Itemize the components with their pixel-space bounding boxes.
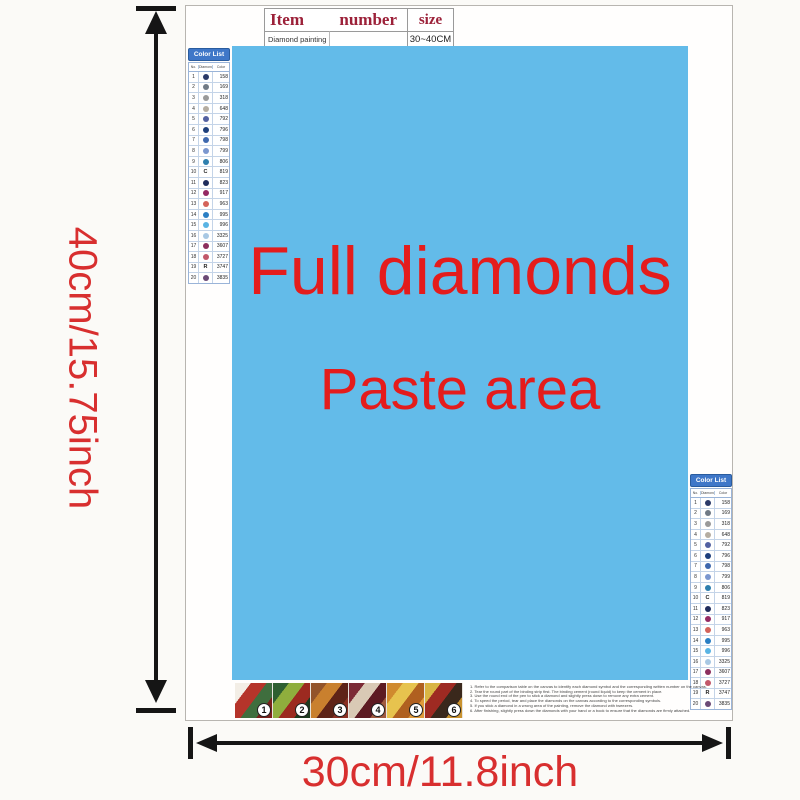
diamond-color-dot — [705, 648, 711, 654]
dmc-color-code: 796 — [715, 553, 731, 559]
diamond-symbol — [199, 125, 213, 135]
dmc-color-code: 799 — [715, 574, 731, 580]
diamond-symbol — [199, 178, 213, 188]
color-list-row: 163325 — [189, 231, 229, 242]
arrow-right-icon — [702, 734, 723, 752]
dmc-color-code: 792 — [715, 542, 731, 548]
color-list-row: 9806 — [189, 157, 229, 168]
dmc-color-code: 158 — [213, 74, 229, 80]
color-list-row: 19R3747 — [189, 263, 229, 274]
canvas-sheet: Item number size Diamond painting 30~40C… — [185, 5, 733, 721]
diamond-symbol — [701, 540, 715, 550]
color-list-row: 7798 — [691, 562, 731, 573]
color-list-row: 3318 — [691, 519, 731, 530]
dmc-color-code: 819 — [213, 169, 229, 175]
diamond-symbol — [701, 509, 715, 519]
vertical-arrow-bottom-cap — [136, 708, 176, 713]
color-list-row: 6796 — [189, 125, 229, 136]
diamond-color-dot — [203, 148, 209, 154]
dmc-color-code: 996 — [715, 648, 731, 654]
color-list-title: Color List — [690, 474, 732, 487]
dmc-color-code: 996 — [213, 222, 229, 228]
preview-thumbnail: 6 — [425, 683, 463, 718]
thumbnail-number-badge: 3 — [333, 703, 347, 717]
dmc-color-code: 3607 — [213, 243, 229, 249]
dmc-color-code: 318 — [213, 95, 229, 101]
color-list-column-header: Diamond — [199, 65, 213, 69]
color-list-row: 1158 — [189, 72, 229, 83]
diamond-color-dot — [705, 606, 711, 612]
preview-thumbnail: 4 — [349, 683, 387, 718]
diamond-color-dot — [705, 669, 711, 675]
color-list-row: 12917 — [691, 615, 731, 626]
color-list-row: 13963 — [189, 199, 229, 210]
color-list-row: 8799 — [691, 572, 731, 583]
diamond-symbol: C — [701, 593, 715, 603]
color-list-row: 5792 — [189, 114, 229, 125]
product-diagram: 40cm/15.75inch Item number size Diamond … — [0, 0, 800, 800]
dmc-color-code: 806 — [715, 585, 731, 591]
dmc-color-code: 158 — [715, 500, 731, 506]
color-list-row: 14995 — [691, 636, 731, 647]
color-row-number: 13 — [189, 199, 199, 209]
diamond-symbol — [701, 636, 715, 646]
thumbnail-number-badge: 6 — [447, 703, 461, 717]
diamond-color-dot — [203, 116, 209, 122]
diamond-symbol — [701, 615, 715, 625]
color-row-number: 12 — [189, 189, 199, 199]
color-row-number: 3 — [691, 519, 701, 529]
preview-thumbnail: 5 — [387, 683, 425, 718]
dmc-color-code: 819 — [715, 595, 731, 601]
diamond-symbol — [701, 551, 715, 561]
diamond-symbol — [701, 625, 715, 635]
diamond-symbol — [701, 498, 715, 508]
diamond-symbol: R — [199, 263, 213, 273]
diamond-color-dot — [705, 659, 711, 665]
dmc-color-code: 799 — [213, 148, 229, 154]
thumbnail-number-badge: 5 — [409, 703, 423, 717]
color-list-row: 163325 — [691, 657, 731, 668]
color-row-number: 2 — [189, 83, 199, 93]
size-header-label: size — [407, 9, 453, 31]
color-list-column-header: Color — [715, 491, 731, 495]
diamond-color-dot — [203, 159, 209, 165]
horizontal-arrow-right-cap — [726, 727, 731, 759]
color-list-row: 14995 — [189, 210, 229, 221]
diamond-color-dot — [705, 563, 711, 569]
dmc-color-code: 995 — [213, 212, 229, 218]
color-list-row: 9806 — [691, 583, 731, 594]
dmc-color-code: 169 — [213, 84, 229, 90]
color-row-number: 8 — [691, 572, 701, 582]
paste-area-subtitle: Paste area — [232, 356, 688, 423]
color-row-number: 8 — [189, 146, 199, 156]
diamond-symbol — [199, 189, 213, 199]
diamond-symbol — [199, 157, 213, 167]
color-list-row: 173607 — [189, 242, 229, 253]
paste-area: Full diamonds Paste area — [232, 46, 688, 680]
dmc-color-code: 169 — [715, 510, 731, 516]
diamond-symbol — [199, 146, 213, 156]
width-dimension-label: 30cm/11.8inch — [240, 748, 640, 797]
diamond-symbol — [199, 114, 213, 124]
diamond-color-dot — [203, 137, 209, 143]
color-list-row: 13963 — [691, 625, 731, 636]
color-list-row: 15996 — [691, 646, 731, 657]
dmc-color-code: 318 — [715, 521, 731, 527]
diamond-symbol — [199, 242, 213, 252]
diamond-symbol — [701, 668, 715, 678]
diamond-symbol — [701, 562, 715, 572]
diamond-symbol — [199, 136, 213, 146]
color-row-number: 5 — [691, 540, 701, 550]
color-row-number: 15 — [189, 220, 199, 230]
diamond-color-dot — [203, 106, 209, 112]
color-row-number: 1 — [691, 498, 701, 508]
color-list-row: 8799 — [189, 146, 229, 157]
color-row-number: 10 — [189, 167, 199, 177]
item-size-table: Item number size Diamond painting 30~40C… — [264, 8, 454, 48]
diamond-symbol — [199, 210, 213, 220]
color-list-row: 1158 — [691, 498, 731, 509]
arrow-down-icon — [145, 680, 167, 703]
diamond-color-dot — [203, 180, 209, 186]
diamond-color-dot — [705, 532, 711, 538]
diamond-color-dot — [203, 222, 209, 228]
number-header-label: number — [339, 10, 397, 30]
dmc-color-code: 3325 — [213, 233, 229, 239]
color-row-number: 11 — [691, 604, 701, 614]
color-row-number: 1 — [189, 72, 199, 82]
color-list-row: 11823 — [691, 604, 731, 615]
item-number-cell — [329, 31, 407, 47]
color-row-number: 7 — [189, 136, 199, 146]
diamond-symbol — [199, 231, 213, 241]
color-row-number: 11 — [189, 178, 199, 188]
diamond-symbol — [701, 572, 715, 582]
diamond-color-dot — [203, 74, 209, 80]
dmc-color-code: 3835 — [213, 275, 229, 281]
diamond-color-dot — [705, 500, 711, 506]
diamond-color-dot — [705, 638, 711, 644]
color-row-number: 18 — [189, 252, 199, 262]
thumbnail-number-badge: 1 — [257, 703, 271, 717]
color-list-row: 5792 — [691, 540, 731, 551]
instruction-line: 6. After finishing, slightly press down … — [470, 709, 724, 714]
diamond-color-dot — [203, 190, 209, 196]
color-row-number: 9 — [189, 157, 199, 167]
dmc-color-code: 3325 — [715, 659, 731, 665]
diamond-color-dot — [203, 275, 209, 281]
item-name-cell: Diamond painting — [265, 31, 329, 47]
color-row-number: 7 — [691, 562, 701, 572]
diamond-symbol — [701, 530, 715, 540]
diamond-symbol — [701, 604, 715, 614]
horizontal-arrow-shaft — [213, 741, 715, 745]
dmc-color-code: 798 — [213, 137, 229, 143]
color-list-row: 173607 — [691, 668, 731, 679]
color-list-row: 6796 — [691, 551, 731, 562]
diamond-color-dot — [203, 95, 209, 101]
color-row-number: 16 — [189, 231, 199, 241]
preview-thumbnail: 1 — [235, 683, 273, 718]
color-list-row: 7798 — [189, 136, 229, 147]
dmc-color-code: 917 — [715, 616, 731, 622]
color-row-number: 5 — [189, 114, 199, 124]
preview-thumbnail: 3 — [311, 683, 349, 718]
diamond-color-dot — [705, 585, 711, 591]
color-row-number: 13 — [691, 625, 701, 635]
color-list-row: 203835 — [189, 273, 229, 283]
diamond-symbol — [199, 93, 213, 103]
diamond-color-dot — [705, 616, 711, 622]
diamond-color-dot — [203, 127, 209, 133]
color-row-number: 17 — [691, 668, 701, 678]
height-dimension-label: 40cm/15.75inch — [60, 227, 105, 509]
item-size-cell: 30~40CM — [407, 31, 453, 47]
diamond-symbol — [701, 646, 715, 656]
color-row-number: 6 — [189, 125, 199, 135]
color-list-column-header: Diamond — [701, 491, 715, 495]
color-row-number: 9 — [691, 583, 701, 593]
color-row-number: 4 — [189, 104, 199, 114]
diamond-symbol — [199, 72, 213, 82]
diamond-symbol — [199, 220, 213, 230]
color-row-number: 4 — [691, 530, 701, 540]
diamond-symbol — [199, 273, 213, 283]
instruction-text: 1. Refer to the comparison table on the … — [470, 685, 724, 713]
diamond-letter-symbol: R — [204, 264, 208, 270]
color-list-row: 10C819 — [691, 593, 731, 604]
diamond-color-dot — [705, 553, 711, 559]
color-list-row: 2169 — [691, 509, 731, 520]
diamond-symbol — [199, 104, 213, 114]
color-row-number: 14 — [691, 636, 701, 646]
diamond-color-dot — [203, 243, 209, 249]
color-row-number: 16 — [691, 657, 701, 667]
dmc-color-code: 963 — [715, 627, 731, 633]
color-list-column-header: No. — [691, 491, 701, 495]
color-list-row: 2169 — [189, 83, 229, 94]
color-list-left: Color ListNo.DiamondColor115821693318464… — [188, 48, 230, 284]
color-list-row: 12917 — [189, 189, 229, 200]
color-row-number: 3 — [189, 93, 199, 103]
diamond-color-dot — [705, 627, 711, 633]
diamond-letter-symbol: C — [706, 595, 710, 601]
diamond-color-dot — [705, 542, 711, 548]
dmc-color-code: 963 — [213, 201, 229, 207]
color-list-title: Color List — [188, 48, 230, 61]
color-row-number: 15 — [691, 646, 701, 656]
diamond-color-dot — [203, 201, 209, 207]
color-list-column-header: Color — [213, 65, 229, 69]
diamond-color-dot — [705, 521, 711, 527]
dmc-color-code: 823 — [213, 180, 229, 186]
dmc-color-code: 796 — [213, 127, 229, 133]
thumbnail-number-badge: 2 — [295, 703, 309, 717]
color-row-number: 14 — [189, 210, 199, 220]
color-list-column-header: No. — [189, 65, 199, 69]
diamond-symbol — [199, 252, 213, 262]
color-list-row: 183727 — [189, 252, 229, 263]
paste-area-title: Full diamonds — [232, 232, 688, 310]
diamond-symbol: C — [199, 167, 213, 177]
diamond-color-dot — [203, 254, 209, 260]
diamond-color-dot — [203, 233, 209, 239]
diamond-color-dot — [203, 84, 209, 90]
thumbnail-number-badge: 4 — [371, 703, 385, 717]
diamond-symbol — [199, 199, 213, 209]
horizontal-arrow-left-cap — [188, 727, 193, 759]
color-list-table: No.DiamondColor1158216933184648579267967… — [690, 488, 732, 710]
diamond-symbol — [701, 657, 715, 667]
color-row-number: 6 — [691, 551, 701, 561]
diamond-letter-symbol: C — [204, 169, 208, 175]
color-row-number: 20 — [189, 273, 199, 283]
dmc-color-code: 806 — [213, 159, 229, 165]
color-row-number: 12 — [691, 615, 701, 625]
diamond-color-dot — [203, 212, 209, 218]
dmc-color-code: 995 — [715, 638, 731, 644]
diamond-color-dot — [705, 510, 711, 516]
color-list-row: 3318 — [189, 93, 229, 104]
color-list-right: Color ListNo.DiamondColor115821693318464… — [690, 474, 732, 710]
diamond-symbol — [199, 83, 213, 93]
color-list-row: 10C819 — [189, 167, 229, 178]
dmc-color-code: 823 — [715, 606, 731, 612]
diamond-color-dot — [705, 574, 711, 580]
dmc-color-code: 648 — [213, 106, 229, 112]
color-list-row: 11823 — [189, 178, 229, 189]
color-row-number: 19 — [189, 263, 199, 273]
color-list-row: 4648 — [189, 104, 229, 115]
dmc-color-code: 917 — [213, 190, 229, 196]
diamond-symbol — [701, 519, 715, 529]
dmc-color-code: 798 — [715, 563, 731, 569]
dmc-color-code: 648 — [715, 532, 731, 538]
color-row-number: 10 — [691, 593, 701, 603]
dmc-color-code: 3747 — [213, 264, 229, 270]
item-table-header: Item number — [265, 9, 407, 31]
color-row-number: 17 — [189, 242, 199, 252]
dmc-color-code: 792 — [213, 116, 229, 122]
item-header-label: Item — [270, 10, 304, 30]
vertical-arrow-shaft — [154, 30, 158, 682]
preview-thumbnails: 123456 — [235, 683, 463, 718]
color-list-table: No.DiamondColor1158216933184648579267967… — [188, 62, 230, 284]
color-row-number: 2 — [691, 509, 701, 519]
dmc-color-code: 3607 — [715, 669, 731, 675]
color-list-row: 4648 — [691, 530, 731, 541]
color-list-row: 15996 — [189, 220, 229, 231]
diamond-symbol — [701, 583, 715, 593]
preview-thumbnail: 2 — [273, 683, 311, 718]
dmc-color-code: 3727 — [213, 254, 229, 260]
